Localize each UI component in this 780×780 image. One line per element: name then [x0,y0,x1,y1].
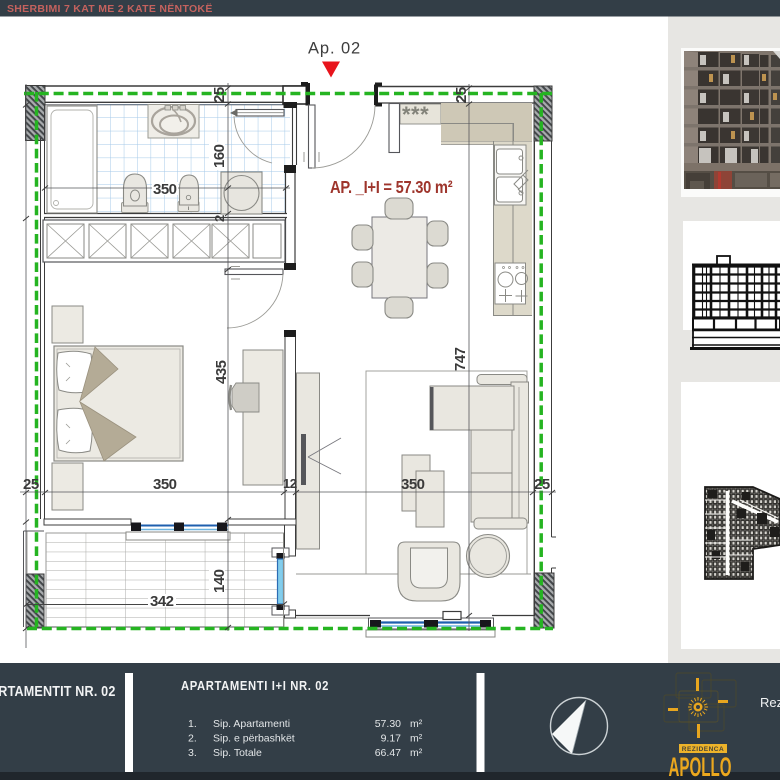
svg-text:350: 350 [401,476,425,493]
svg-text:2.: 2. [188,733,197,745]
svg-text:Sip. Apartamenti: Sip. Apartamenti [213,718,290,730]
svg-text:25: 25 [534,476,550,493]
svg-text:Sip. e përbashkët: Sip. e përbashkët [213,733,295,745]
svg-text:160: 160 [211,144,228,168]
svg-text:3.: 3. [188,747,197,759]
svg-text:Rezidenca: Rezidenca [760,695,780,710]
svg-text:9.17: 9.17 [381,733,402,745]
svg-text:2: 2 [212,215,227,222]
svg-text:342: 342 [150,593,174,610]
svg-text:1.: 1. [188,718,197,730]
svg-text:747: 747 [452,347,469,371]
svg-text:AP. _I+I = 57.30 m²: AP. _I+I = 57.30 m² [330,178,453,197]
svg-text:350: 350 [153,181,177,198]
svg-text:APOLLO: APOLLO [669,751,732,780]
svg-text:12: 12 [283,476,297,491]
svg-text:SHERBIMI 7 KAT ME 2 KATE NËNTO: SHERBIMI 7 KAT ME 2 KATE NËNTOKË [7,2,213,15]
svg-text:25: 25 [453,87,470,103]
svg-text:Ap. 02: Ap. 02 [308,40,361,58]
svg-text:PLANI I APARTAMENTIT NR. 02: PLANI I APARTAMENTIT NR. 02 [0,682,116,699]
svg-text:m²: m² [410,747,423,759]
svg-text:***: *** [402,102,429,127]
svg-text:Sip. Totale: Sip. Totale [213,747,262,759]
svg-text:m²: m² [410,718,423,730]
svg-text:57.30: 57.30 [375,718,401,730]
svg-text:66.47: 66.47 [375,747,401,759]
svg-text:m²: m² [410,733,423,745]
svg-text:350: 350 [153,476,177,493]
svg-text:140: 140 [211,569,228,593]
svg-text:435: 435 [213,360,230,384]
svg-text:25: 25 [23,476,39,493]
svg-text:25: 25 [211,87,228,103]
svg-text:APARTAMENTI I+I NR. 02: APARTAMENTI I+I NR. 02 [181,678,329,693]
